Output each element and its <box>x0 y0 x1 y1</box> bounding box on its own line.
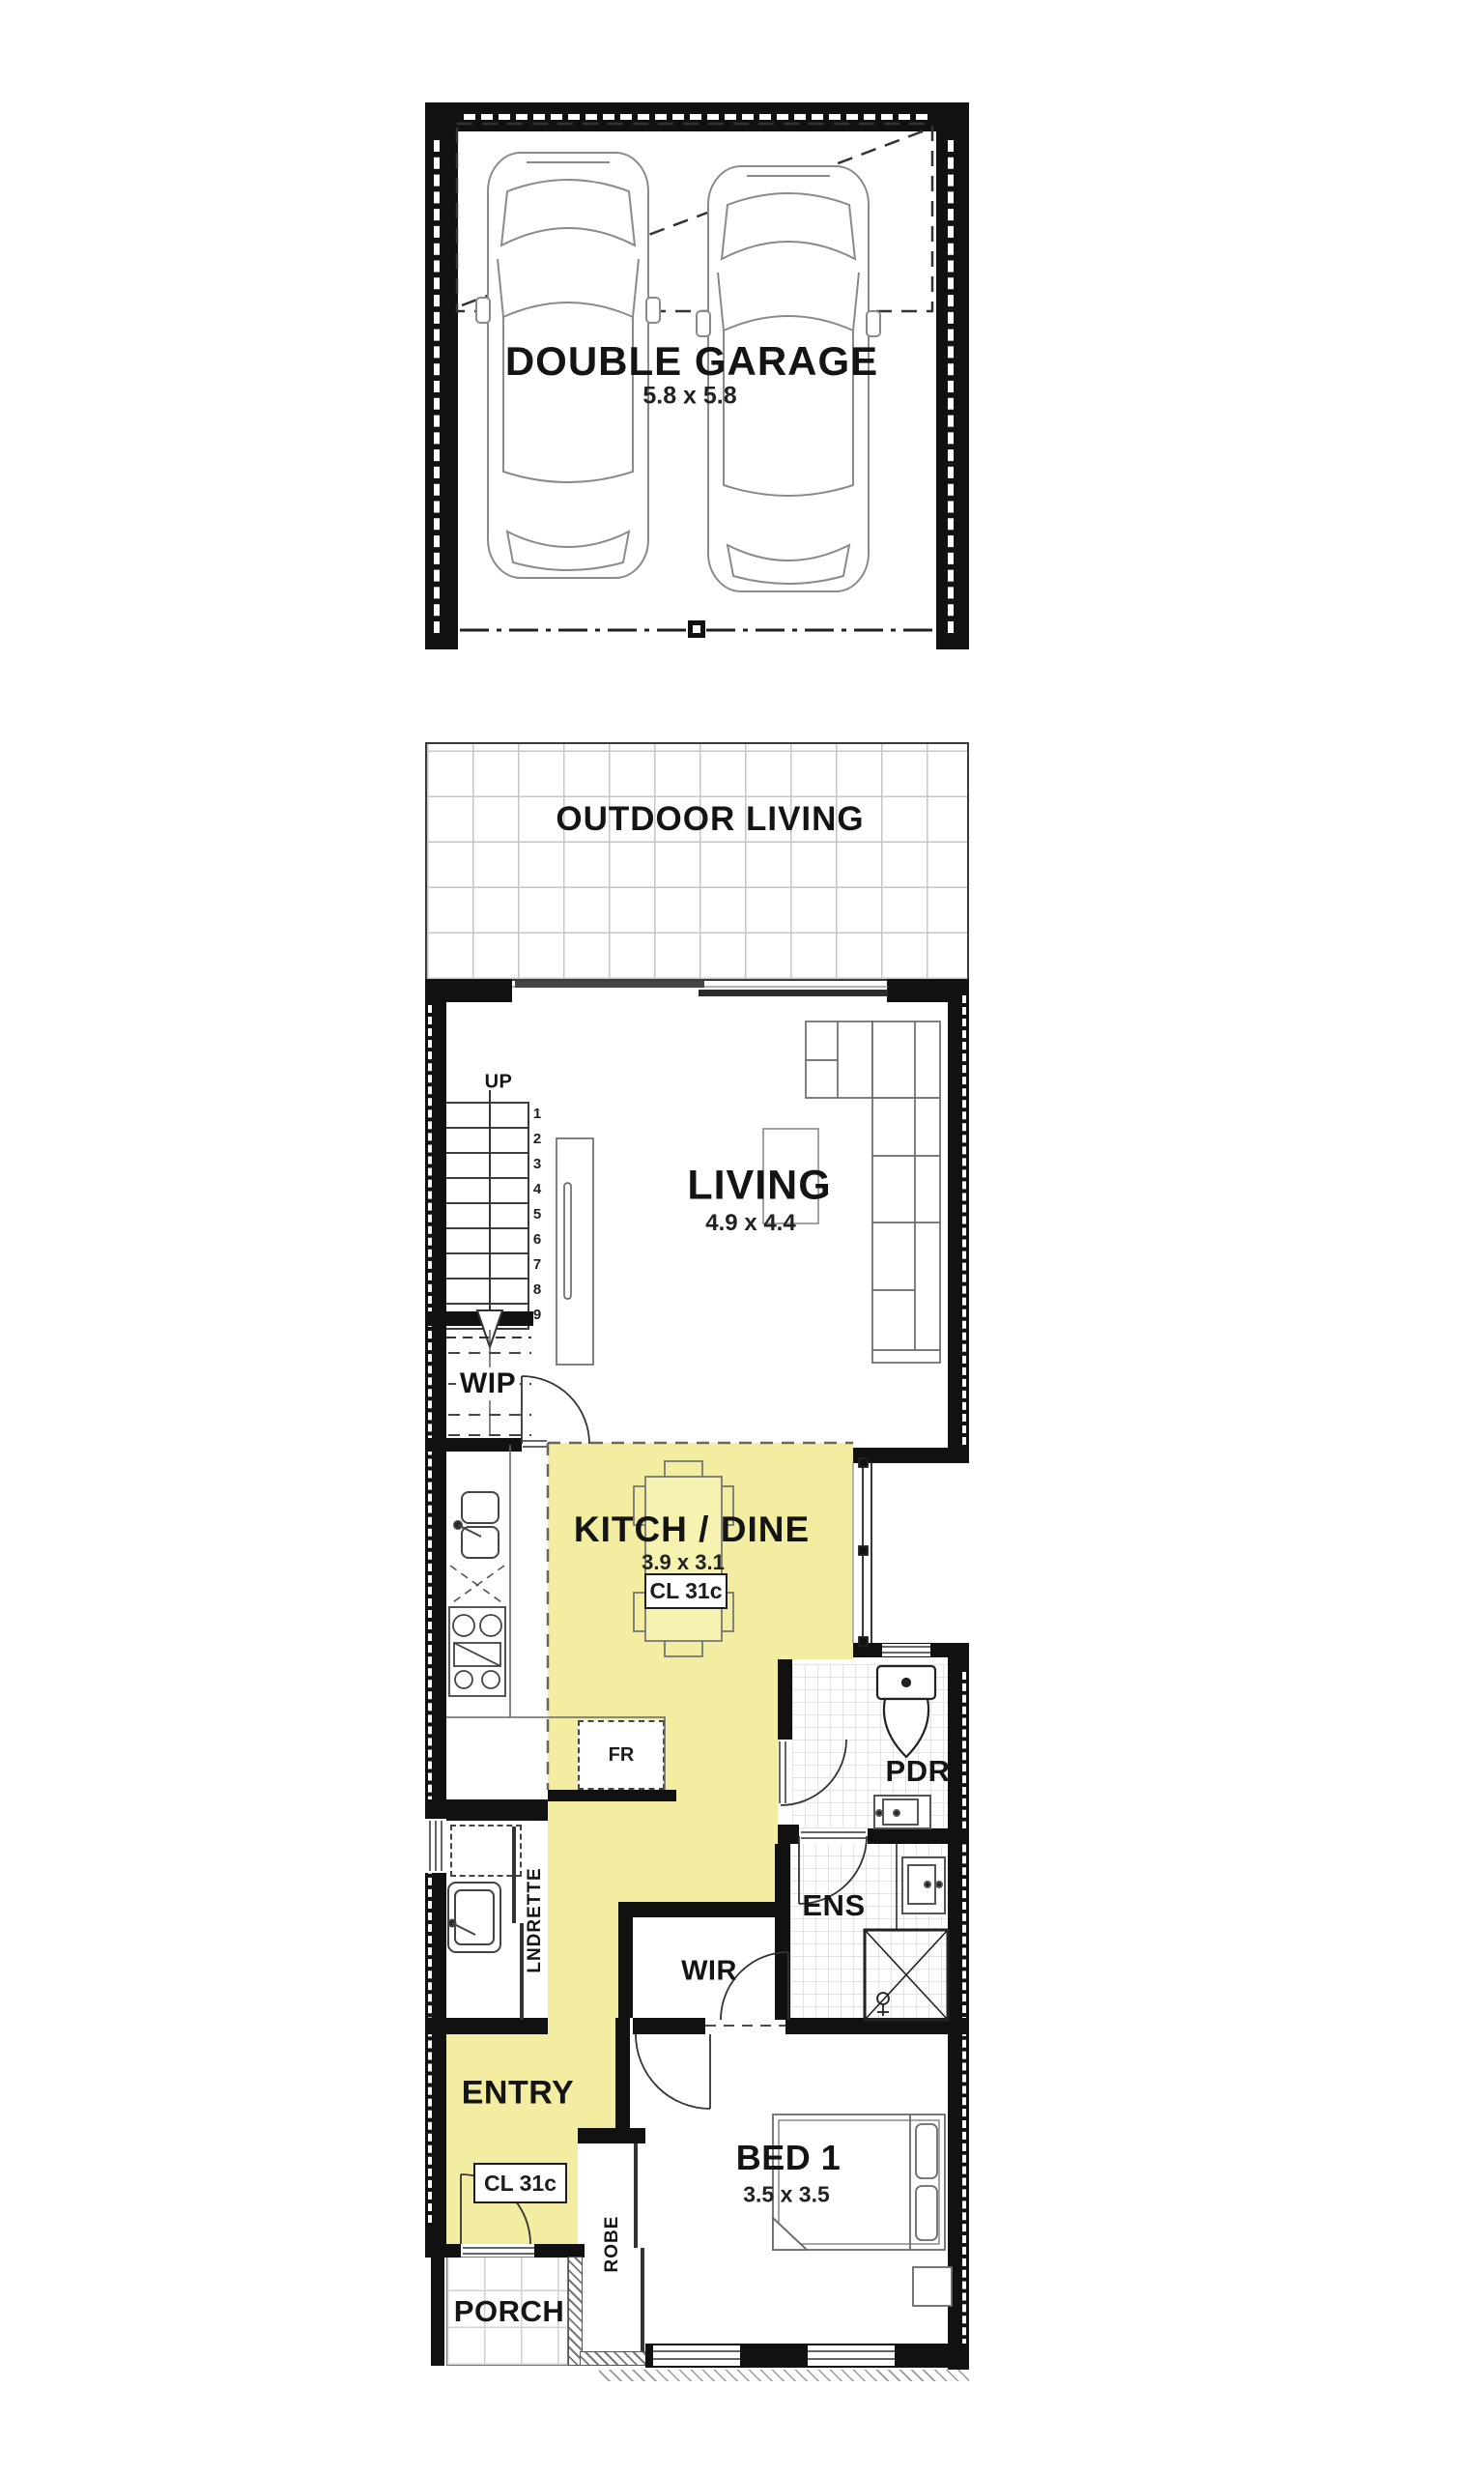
cooktop-icon <box>449 1607 505 1696</box>
bed1-label: BED 1 <box>736 2138 842 2178</box>
entry-ceiling-box: CL 31c <box>473 2163 567 2203</box>
wip-door-icon <box>522 1376 589 1444</box>
bed1-door-icon <box>636 2034 710 2109</box>
shower-icon <box>865 1930 948 2020</box>
pdr-label: PDR <box>886 1754 951 1789</box>
garage-door-line-icon <box>460 620 933 638</box>
entry-label: ENTRY <box>462 2075 574 2113</box>
stairs-direction-arrow <box>446 1090 531 1347</box>
ens-vanity-icon <box>897 1844 945 1930</box>
porch-label: PORCH <box>454 2294 564 2329</box>
kitchen-ceiling-label: CL 31c <box>649 1578 722 1604</box>
kitchen-dine-label: KITCH / DINE <box>574 1510 810 1550</box>
tv-unit-icon <box>556 1138 593 1365</box>
entry-ceiling-label: CL 31c <box>484 2171 556 2197</box>
wir-label: WIR <box>681 1956 737 1988</box>
toilet-icon <box>877 1666 935 1757</box>
kitchen-window-wall-icon <box>853 1458 871 1646</box>
laundry-sliding-doors-icon <box>512 1827 524 2020</box>
floor-plan: 1 2 3 4 5 6 7 8 9 FR <box>0 0 1484 2474</box>
ens-label: ENS <box>802 1888 865 1923</box>
dishwasher-icon <box>450 1566 504 1604</box>
kitchen-sink-icon <box>454 1492 499 1558</box>
pdr-door-icon <box>781 1740 846 1805</box>
outdoor-living-label: OUTDOOR LIVING <box>556 800 864 839</box>
kitchen-dine-dim: 3.9 x 3.1 <box>642 1550 725 1575</box>
living-label: LIVING <box>687 1163 831 1210</box>
wip-label: WIP <box>456 1367 520 1400</box>
bed1-dim: 3.5 x 3.5 <box>743 2182 830 2208</box>
robe-label: ROBE <box>602 2216 623 2273</box>
pdr-vanity-icon <box>874 1796 930 1828</box>
kitchen-ceiling-box: CL 31c <box>644 1573 728 1609</box>
laundry-label: LNDRETTE <box>525 1867 546 1972</box>
garage-dim: 5.8 x 5.8 <box>642 383 736 411</box>
living-dim: 4.9 x 4.4 <box>705 1210 795 1237</box>
laundry-trough-icon <box>448 1883 500 1952</box>
stairs-up-label: UP <box>485 1072 513 1094</box>
garage-label: DOUBLE GARAGE <box>505 338 878 385</box>
sliding-door-icon <box>512 981 888 996</box>
